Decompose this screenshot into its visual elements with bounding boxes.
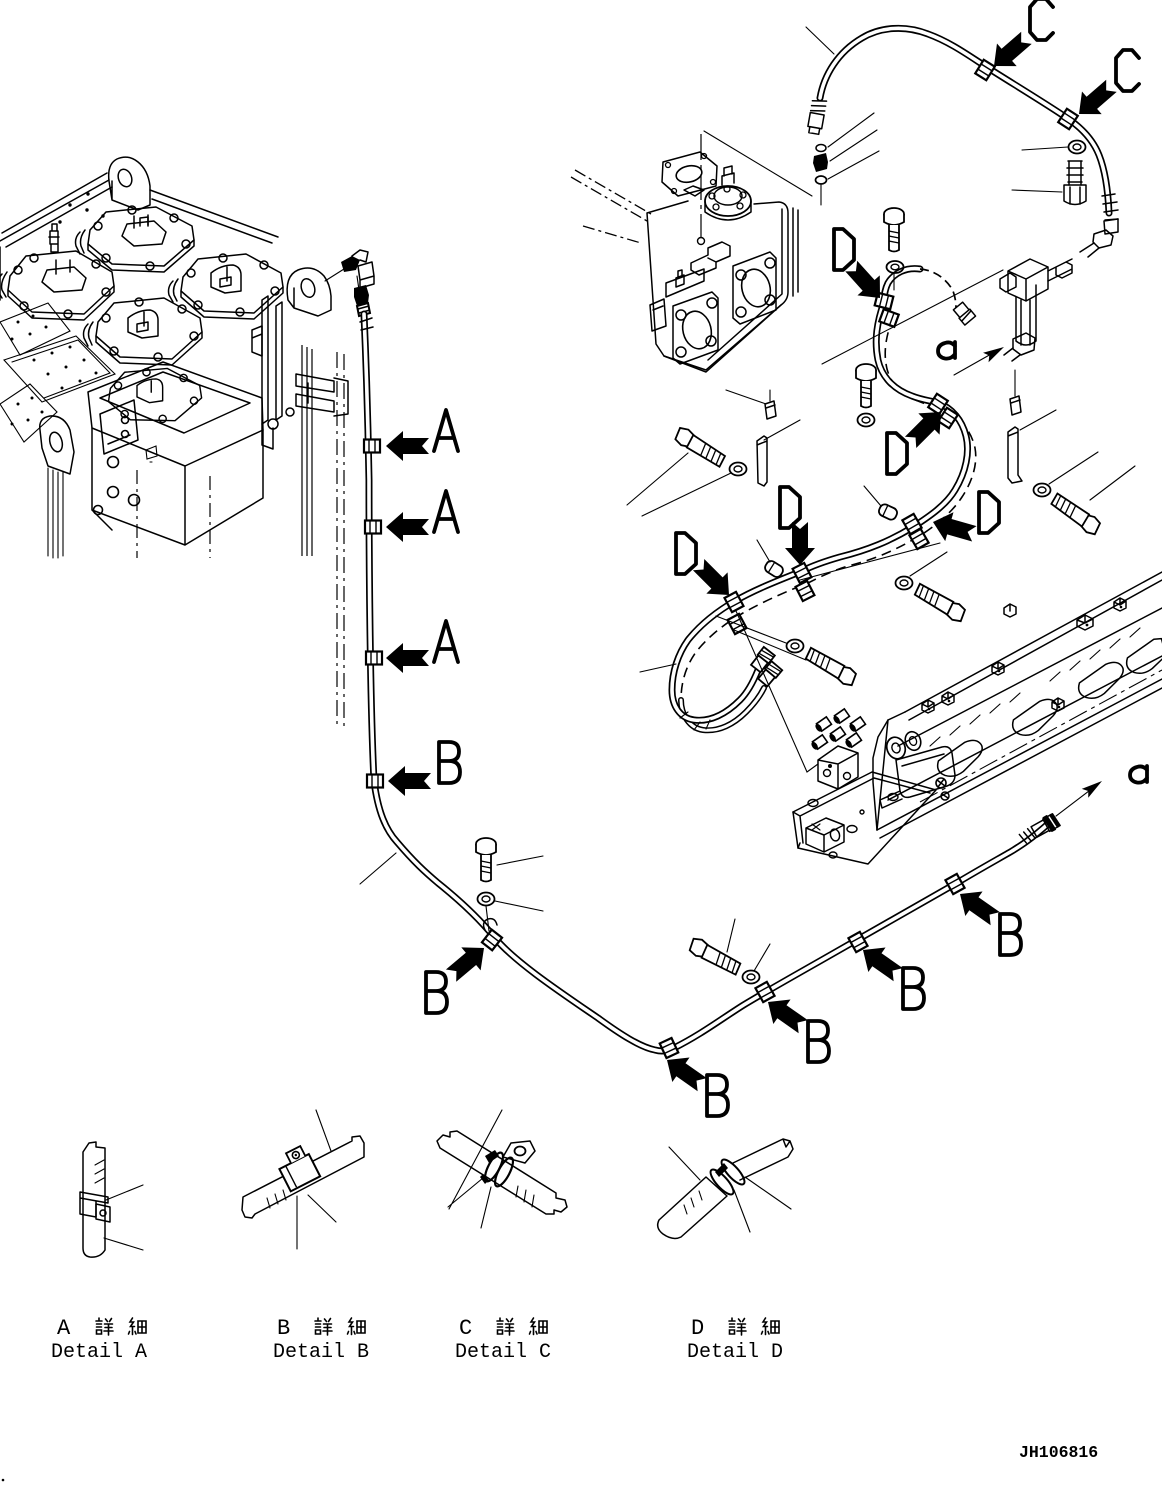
svg-text:A: A	[57, 1316, 71, 1341]
svg-text:Detail A: Detail A	[51, 1341, 147, 1364]
svg-text:Detail D: Detail D	[687, 1341, 783, 1364]
svg-text:Detail B: Detail B	[273, 1341, 369, 1364]
svg-text:JH106816: JH106816	[1019, 1443, 1098, 1462]
svg-text:Detail C: Detail C	[455, 1341, 551, 1364]
svg-text:D: D	[691, 1316, 704, 1341]
svg-text:C: C	[459, 1316, 472, 1341]
svg-text:B: B	[277, 1316, 290, 1341]
